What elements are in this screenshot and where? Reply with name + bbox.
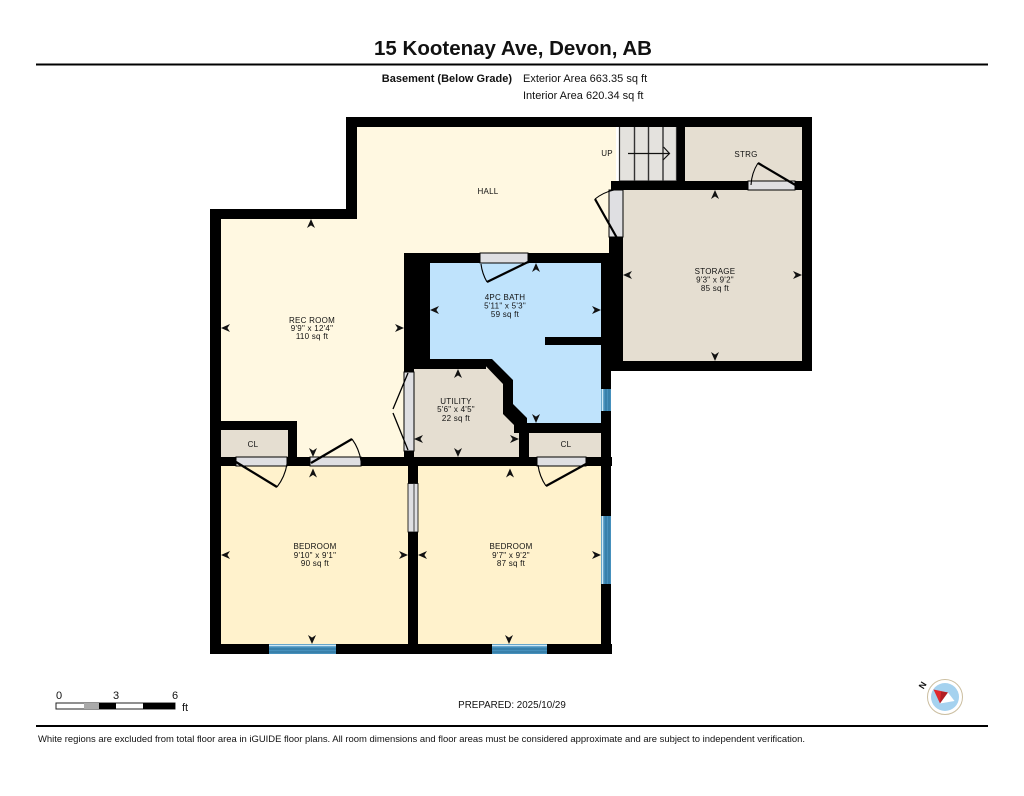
svg-text:BEDROOM: BEDROOM xyxy=(489,542,532,551)
svg-text:85 sq ft: 85 sq ft xyxy=(701,284,730,293)
svg-text:CL: CL xyxy=(561,440,572,449)
svg-text:Basement (Below Grade): Basement (Below Grade) xyxy=(382,73,513,85)
svg-text:Interior Area 620.34 sq ft: Interior Area 620.34 sq ft xyxy=(523,90,643,102)
svg-text:6: 6 xyxy=(172,690,178,702)
svg-text:HALL: HALL xyxy=(477,187,498,196)
svg-text:CL: CL xyxy=(248,440,259,449)
svg-text:5'6" x 4'5": 5'6" x 4'5" xyxy=(437,405,475,414)
svg-text:Exterior Area 663.35 sq ft: Exterior Area 663.35 sq ft xyxy=(523,73,647,85)
svg-text:0: 0 xyxy=(56,690,62,702)
svg-text:59 sq ft: 59 sq ft xyxy=(491,310,520,319)
svg-text:STRG: STRG xyxy=(734,150,757,159)
svg-text:22 sq ft: 22 sq ft xyxy=(442,414,471,423)
svg-text:15 Kootenay Ave, Devon, AB: 15 Kootenay Ave, Devon, AB xyxy=(374,37,652,60)
svg-text:87 sq ft: 87 sq ft xyxy=(497,559,526,568)
svg-text:ft: ft xyxy=(182,702,188,714)
svg-text:110 sq ft: 110 sq ft xyxy=(296,332,329,341)
svg-text:UP: UP xyxy=(601,149,613,158)
svg-text:PREPARED: 2025/10/29: PREPARED: 2025/10/29 xyxy=(458,700,566,711)
svg-text:White regions are excluded fro: White regions are excluded from total fl… xyxy=(38,734,805,745)
svg-text:90 sq ft: 90 sq ft xyxy=(301,559,330,568)
svg-text:BEDROOM: BEDROOM xyxy=(293,542,336,551)
svg-text:3: 3 xyxy=(113,690,119,702)
